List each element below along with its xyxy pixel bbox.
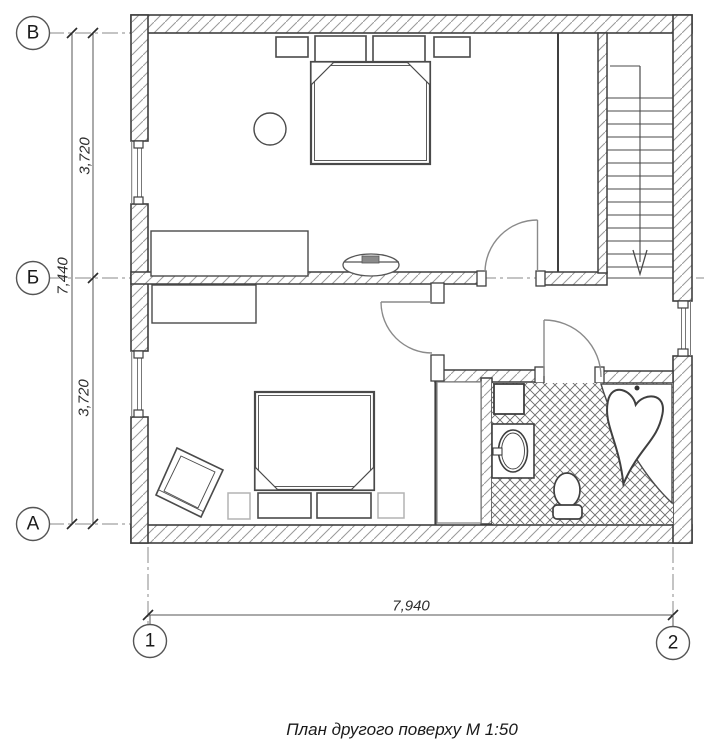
- window-right: [678, 301, 691, 356]
- window-left-lower: [132, 351, 143, 417]
- column-marker-1: 1: [145, 632, 156, 651]
- door-bathroom: [544, 320, 601, 377]
- bed2-inner: [259, 396, 371, 487]
- bed1-inner: [315, 66, 427, 161]
- bathtub-faucet: [635, 386, 640, 391]
- dimension-left-total: 7,440: [56, 257, 71, 295]
- toilet: [553, 473, 582, 519]
- pillow-left: [315, 36, 366, 63]
- nightstand-right: [434, 37, 470, 57]
- door-bedroom2: [381, 302, 432, 353]
- pillow2-right: [317, 493, 371, 518]
- closet-niche: [437, 382, 481, 523]
- window-left-upper: [132, 141, 143, 204]
- side-table-left: [228, 493, 250, 519]
- floor-plan-canvas: В Б А 1 2 3,720 7,440 3,720 7,940 План д…: [0, 0, 708, 750]
- nightstand-left: [276, 37, 308, 57]
- door-jambs: [431, 271, 604, 383]
- closet: [152, 285, 256, 323]
- pillow-right: [373, 36, 425, 63]
- row-marker-b: Б: [27, 269, 39, 288]
- duct-shaft: [494, 384, 524, 414]
- dimension-left-upper: 3,720: [78, 137, 93, 175]
- wall-basin: [343, 254, 399, 276]
- dimension-left-lower: 3,720: [77, 379, 92, 417]
- row-marker-v: В: [27, 24, 40, 43]
- stairs: [607, 66, 673, 278]
- plan-title: План другого поверху М 1:50: [286, 720, 518, 740]
- row-marker-a: А: [27, 515, 40, 534]
- side-table-right: [378, 493, 404, 518]
- armchair: [156, 448, 223, 517]
- door-bedroom1: [485, 220, 538, 272]
- bedroom1-furniture: [151, 36, 470, 276]
- round-stool: [254, 113, 286, 145]
- long-cabinet: [151, 231, 308, 276]
- dimension-bottom-total: 7,940: [392, 599, 430, 614]
- column-marker-2: 2: [668, 634, 679, 653]
- washbasin: [492, 424, 534, 478]
- floor-plan-drawing: [0, 0, 708, 750]
- pillow2-left: [258, 493, 311, 518]
